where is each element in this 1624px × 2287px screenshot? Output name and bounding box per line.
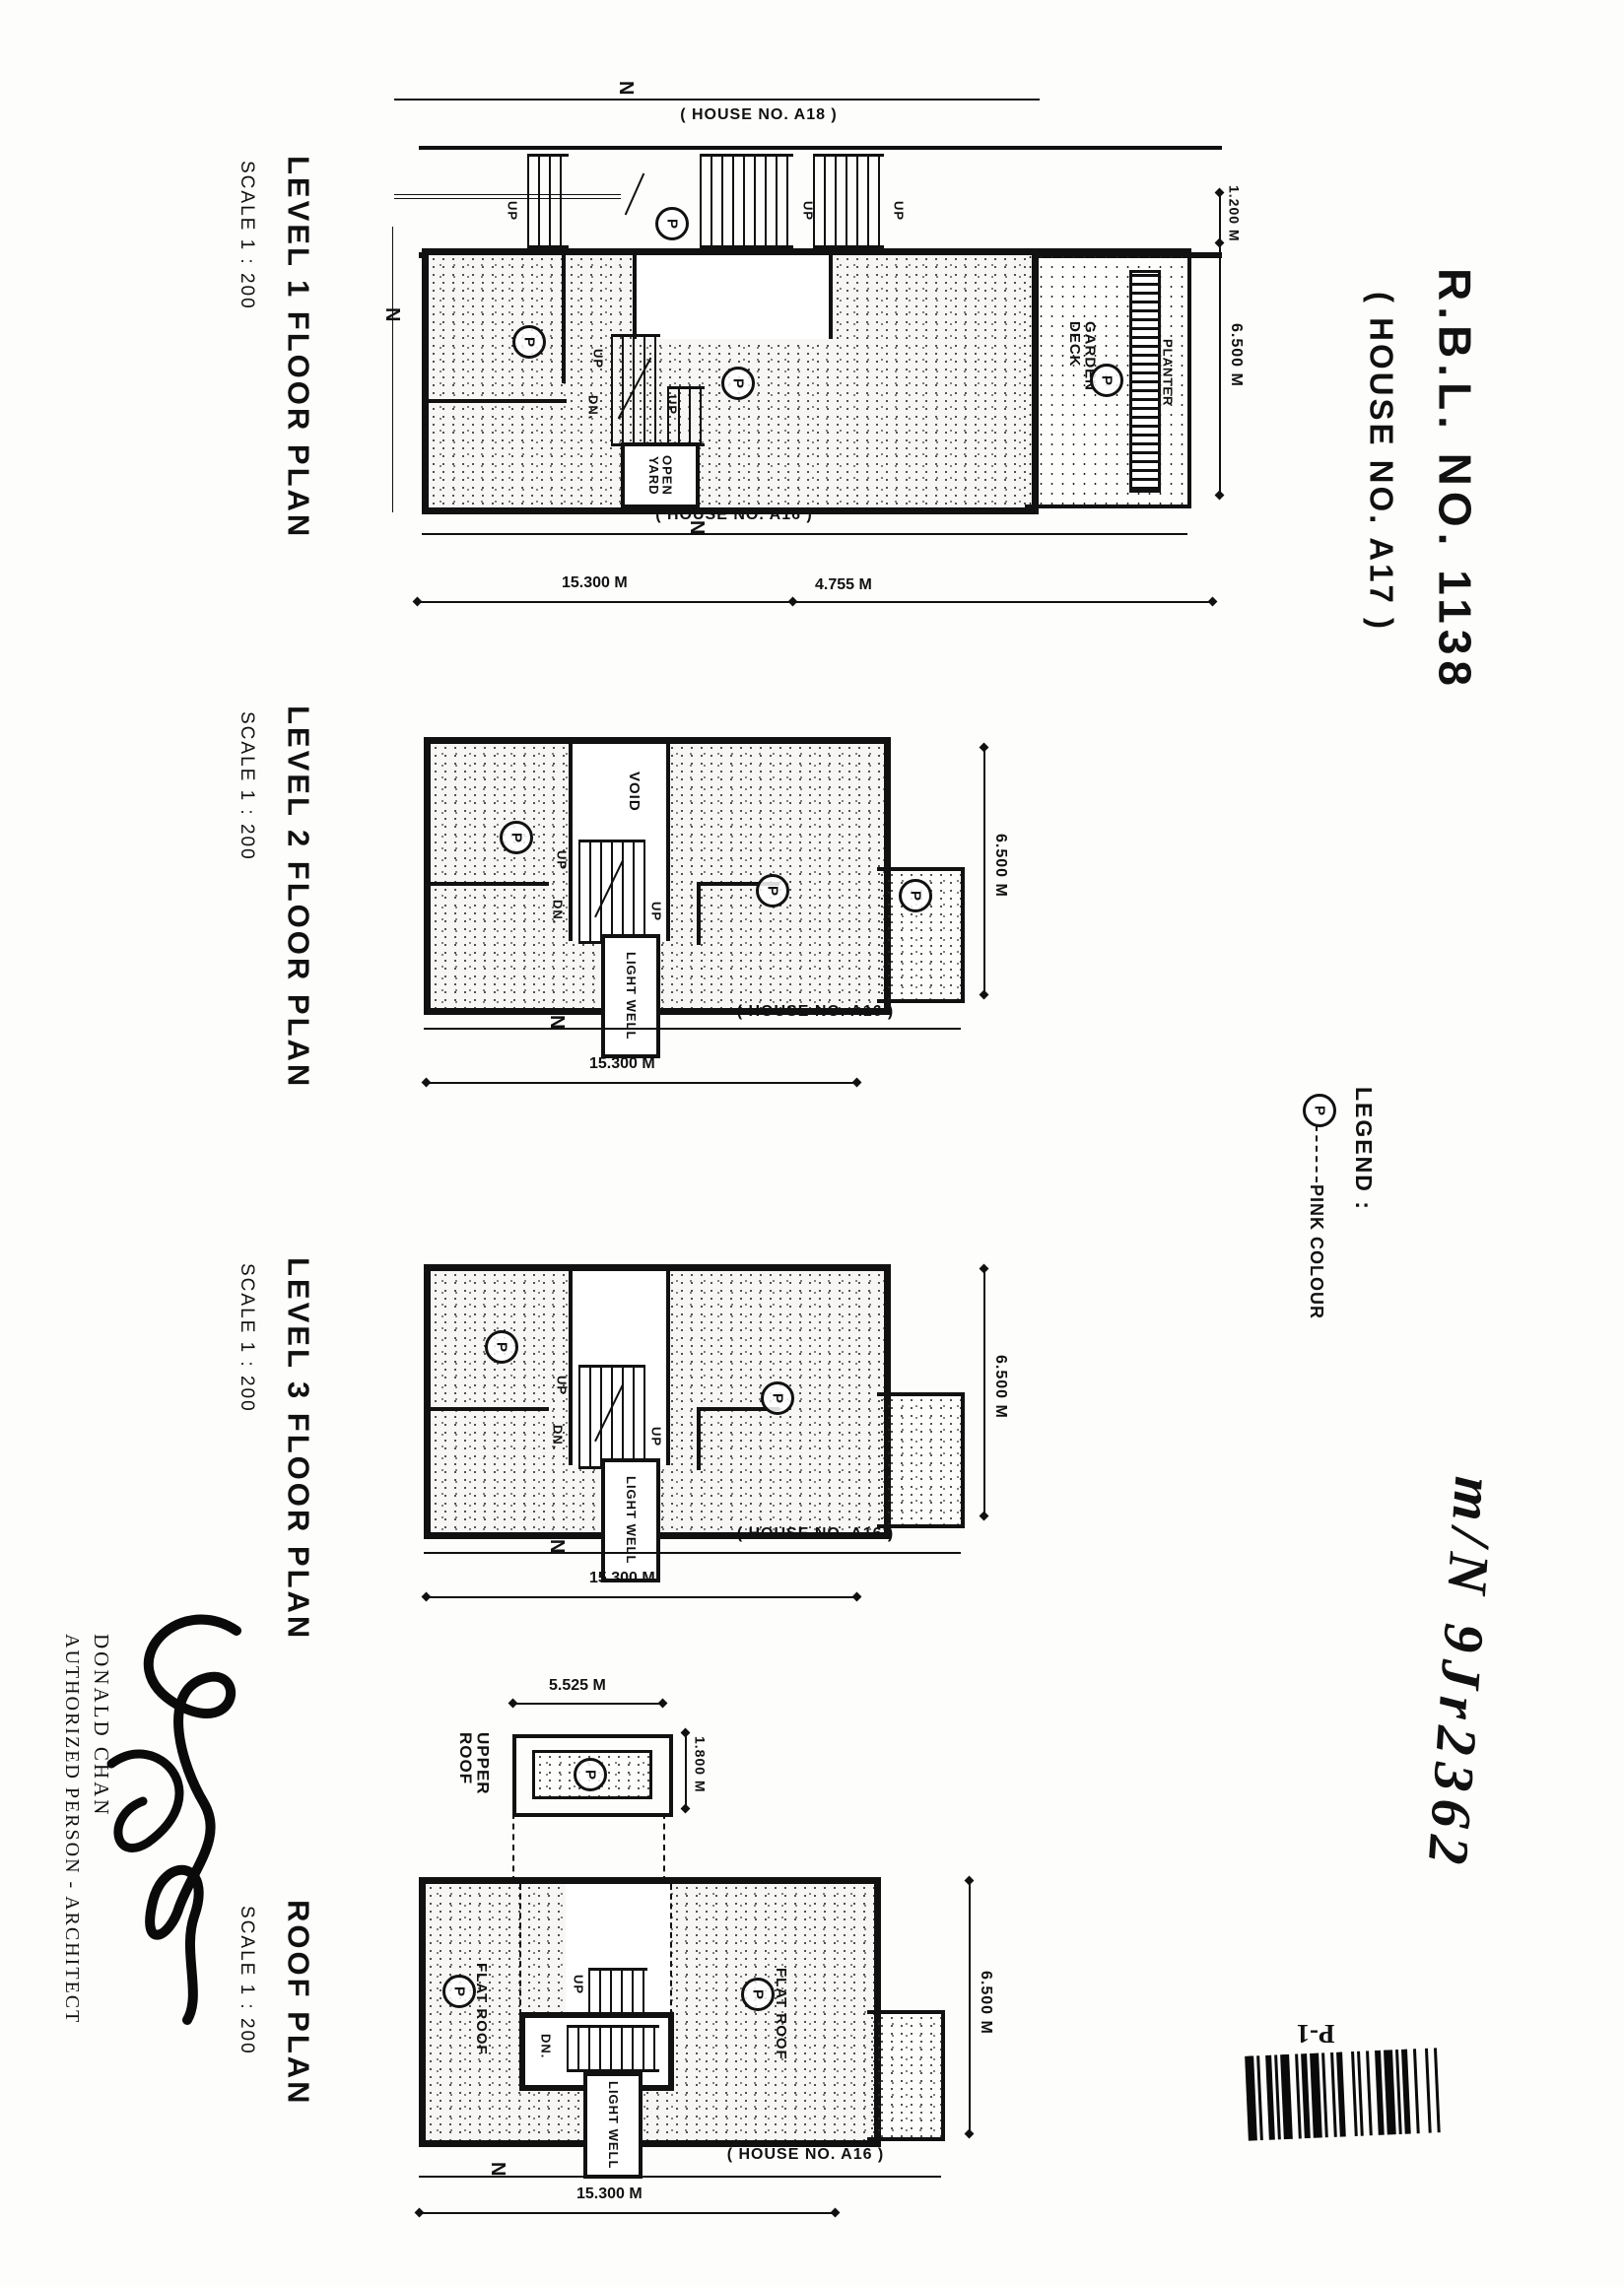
legend-pink-symbol: P <box>1303 1094 1336 1127</box>
stair-up-label: UP <box>506 201 519 221</box>
stair-up-label: UP <box>649 902 663 921</box>
dim-6500-label: 6.500 M <box>991 834 1008 898</box>
dim-15300-label: 15.300 M <box>589 1570 655 1587</box>
dim-1800-line <box>685 1732 687 1811</box>
dim-5525-line <box>512 1703 665 1705</box>
projection-line <box>670 1884 672 2015</box>
level3-house-a16-label: ( HOUSE NO. A16 ) <box>690 1525 941 1543</box>
dim-line-6500 <box>983 747 985 997</box>
sheet-title-house: ( HOUSE NO. A17 ) <box>1364 292 1398 794</box>
level2-house-a16-label: ( HOUSE NO. A16 ) <box>690 1003 941 1021</box>
partition-wall <box>697 882 701 945</box>
level1-corridor: UP UP UP P <box>419 146 1222 258</box>
stair <box>567 2025 659 2072</box>
partition-wall <box>429 399 567 403</box>
level2-plan: VOID UP DN. UP P P LIGHT WELL P ( HOUSE … <box>414 729 1054 1104</box>
level1-north-left: N <box>380 307 403 321</box>
dim-1800-label: 1.800 M <box>693 1736 708 1793</box>
roof-title: ROOF PLAN <box>282 1900 314 2225</box>
light-well-label: LIGHT WELL <box>606 2081 620 2169</box>
dim-6500-label: 6.500 M <box>977 1971 993 2035</box>
stair <box>611 334 660 446</box>
dim-5525-label: 5.525 M <box>549 1677 606 1695</box>
stair-dn-label: DN. <box>551 900 565 924</box>
stair-up-label: UP <box>572 1975 585 1994</box>
neighbor-extension: P <box>877 867 965 1003</box>
pink-symbol: P <box>1090 364 1123 397</box>
projection-line <box>663 1813 665 1882</box>
ref-line <box>394 194 621 195</box>
planter-label: PLANTER <box>1161 339 1175 406</box>
pink-symbol: P <box>655 207 689 240</box>
flat-roof-label: FLAT ROOF <box>773 1968 788 2076</box>
open-yard: OPEN YARD <box>621 442 700 508</box>
dim-15300-label: 15.300 M <box>562 574 628 592</box>
level2-bottom-dim <box>426 1082 859 1084</box>
level3-north: N <box>545 1539 568 1553</box>
architect-name: DONALD CHAN <box>91 1634 112 1860</box>
pink-symbol: P <box>512 325 546 359</box>
section-line-left <box>392 227 393 512</box>
light-well: LIGHT WELL <box>601 934 660 1058</box>
level1-unit-body: UP DN. UP OPEN YARD P P <box>422 248 1039 514</box>
level2-north: N <box>545 1015 568 1029</box>
pink-symbol: P <box>485 1330 518 1364</box>
architect-title: AUTHORIZED PERSON - ARCHITECT <box>61 1634 82 2087</box>
stair-up-label: UP <box>591 349 605 369</box>
legend-dash-line <box>1316 1125 1318 1182</box>
roof-body: UP DN. FLAT ROOF P FLAT ROOF P <box>419 1877 881 2147</box>
level2-bottom-line <box>424 1028 961 1030</box>
light-well: LIGHT WELL <box>583 2072 643 2179</box>
pink-symbol: P <box>756 874 789 908</box>
roof-house-a16-label: ( HOUSE NO. A16 ) <box>680 2146 931 2164</box>
level1-house-a16-label: ( HOUSE NO. A16 ) <box>655 506 813 524</box>
partition-wall <box>431 882 549 886</box>
projection-line <box>519 1884 521 2015</box>
stair-dn-label: DN. <box>539 2034 553 2058</box>
dim-6500-label: 6.500 M <box>1227 323 1244 387</box>
level2-title: LEVEL 2 FLOOR PLAN <box>282 706 314 1139</box>
level1-house-a18-label: ( HOUSE NO. A18 ) <box>680 106 838 124</box>
dim-line-6500 <box>969 1880 971 2136</box>
break-slash <box>625 173 645 216</box>
stair-up-label: UP <box>555 850 569 870</box>
dim-4755-label: 4.755 M <box>815 576 872 594</box>
level3-bottom-line <box>424 1552 961 1554</box>
stair <box>578 1365 645 1469</box>
dim-1200-label: 1.200 M <box>1227 185 1242 242</box>
stair <box>578 840 645 944</box>
barcode <box>1243 2047 1463 2145</box>
neighbor-extension <box>877 1392 965 1528</box>
level3-scale: SCALE 1 : 200 <box>237 1263 256 1460</box>
partition-wall <box>431 1407 549 1411</box>
sheet-title-rbl: R.B.L. NO. 1138 <box>1431 268 1478 899</box>
level1-north-bottom: N <box>685 520 708 534</box>
light-well: LIGHT WELL <box>601 1458 660 1582</box>
level1-scale: SCALE 1 : 200 <box>237 161 256 358</box>
stair-dn-label: DN. <box>586 395 600 420</box>
roof-north: N <box>486 2162 508 2176</box>
level1-bottom-line <box>422 533 1187 535</box>
pink-symbol: P <box>741 1978 775 2011</box>
level1-title: LEVEL 1 FLOOR PLAN <box>282 156 314 589</box>
handwritten-file-ref: m/N 9Jr2362 <box>1410 1474 1505 1970</box>
ref-line <box>394 198 621 199</box>
stair <box>700 154 793 248</box>
upper-roof: P <box>512 1734 673 1817</box>
level3-plan: UP DN. UP P P LIGHT WELL ( HOUSE NO. A16… <box>414 1256 1054 1631</box>
planter-strip <box>1129 270 1161 493</box>
level1-north-top: N <box>614 81 637 95</box>
level1-bottom-dim <box>417 601 1215 603</box>
dim-15300-label: 15.300 M <box>589 1055 655 1073</box>
stair <box>667 386 705 446</box>
pink-symbol: P <box>500 821 533 854</box>
level1-plan: N ( HOUSE NO. A18 ) UP UP UP P N UP <box>389 79 1256 631</box>
flat-roof-label: FLAT ROOF <box>473 1963 489 2071</box>
stair <box>527 154 569 248</box>
projection-line <box>512 1813 514 1882</box>
garden-deck: GARDEN DECK P PLANTER <box>1025 248 1191 508</box>
level2-scale: SCALE 1 : 200 <box>237 711 256 908</box>
pink-symbol: P <box>899 879 932 912</box>
roof-bottom-dim <box>419 2212 838 2214</box>
pink-symbol: P <box>761 1381 794 1415</box>
dim-line-6500 <box>983 1268 985 1518</box>
open-yard-label: OPEN YARD <box>646 455 673 496</box>
stair-dn-label: DN. <box>551 1425 565 1449</box>
pink-symbol: P <box>574 1758 607 1791</box>
level3-title: LEVEL 3 FLOOR PLAN <box>282 1257 314 1691</box>
pink-symbol: P <box>442 1975 476 2008</box>
legend-color-label: PINK COLOUR <box>1307 1184 1325 1332</box>
partition-wall <box>562 255 566 383</box>
legend-heading: LEGEND : <box>1352 1087 1376 1254</box>
upper-roof-label: UPPER ROOF <box>456 1732 492 1813</box>
stair-up-label: UP <box>649 1427 663 1446</box>
entry-hall <box>633 255 833 339</box>
page-code: P-1 <box>1281 2018 1350 2049</box>
drawing-sheet: R.B.L. NO. 1138 ( HOUSE NO. A17 ) LEVEL … <box>0 0 1624 2287</box>
level1-top-line <box>394 99 1040 101</box>
pink-symbol: P <box>721 367 755 400</box>
void-label: VOID <box>626 772 642 812</box>
dim-line-1200 <box>1219 192 1221 243</box>
dim-line-6500 <box>1219 243 1221 498</box>
partition-wall <box>697 1407 701 1470</box>
level3-bottom-dim <box>426 1596 859 1598</box>
dim-6500-label: 6.500 M <box>991 1355 1008 1419</box>
neighbor-extension <box>867 2010 945 2141</box>
stair-up-label: UP <box>892 201 906 221</box>
stair <box>813 154 884 248</box>
dim-15300-label: 15.300 M <box>576 2186 643 2203</box>
roof-plan: 5.525 M UPPER ROOF P 1.800 M UP DN. FLAT… <box>389 1675 1079 2247</box>
stair-up-label: UP <box>555 1376 569 1395</box>
